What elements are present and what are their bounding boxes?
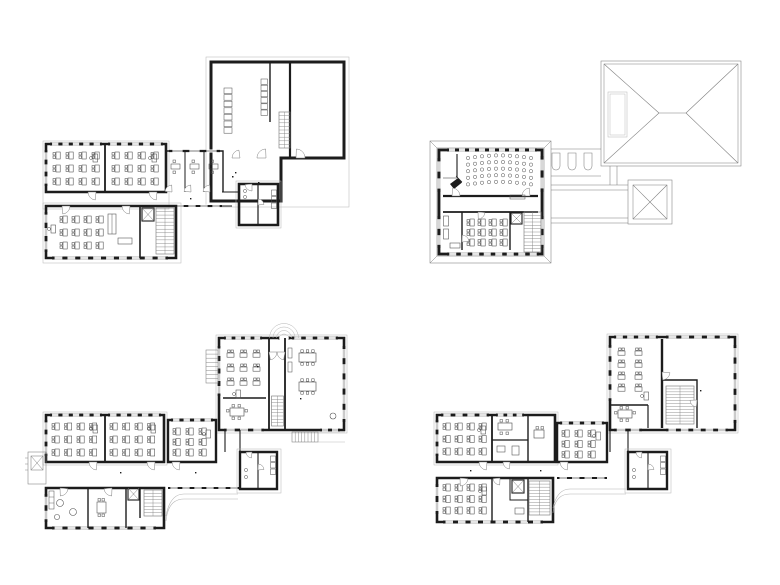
classroom-wing bbox=[43, 141, 169, 209]
wc-block bbox=[625, 449, 671, 493]
floor-plan-bottom-left bbox=[25, 324, 347, 530]
lower-rooms bbox=[443, 212, 541, 252]
third-classroom bbox=[557, 421, 607, 470]
drawing-sheet bbox=[0, 0, 780, 585]
ground-floor-rooms bbox=[44, 488, 164, 530]
auditorium bbox=[443, 154, 538, 199]
floor-plan-bottom-right bbox=[434, 334, 738, 524]
small-offices bbox=[165, 150, 223, 193]
side-entrance bbox=[25, 452, 46, 484]
third-classroom bbox=[168, 418, 216, 470]
classroom-wing bbox=[434, 412, 558, 470]
lower-classroom-block bbox=[43, 203, 181, 263]
entrance-building bbox=[216, 324, 347, 434]
floor-plan-top-left bbox=[43, 57, 349, 263]
walkway-connector bbox=[551, 149, 628, 223]
floor-plans-svg bbox=[0, 0, 780, 585]
hall-building bbox=[607, 334, 738, 433]
floor-plan-top-right bbox=[430, 61, 741, 263]
corridor bbox=[470, 430, 628, 479]
classroom-wing bbox=[43, 412, 167, 470]
exterior-path bbox=[166, 494, 238, 521]
pyramid-skylight-roof bbox=[628, 180, 672, 224]
exterior-path bbox=[553, 489, 626, 513]
lower-classroom-block bbox=[435, 478, 553, 524]
wc-block bbox=[237, 449, 281, 493]
hipped-roof bbox=[601, 61, 741, 166]
auditorium-building bbox=[430, 141, 551, 263]
wc-block bbox=[222, 181, 281, 228]
